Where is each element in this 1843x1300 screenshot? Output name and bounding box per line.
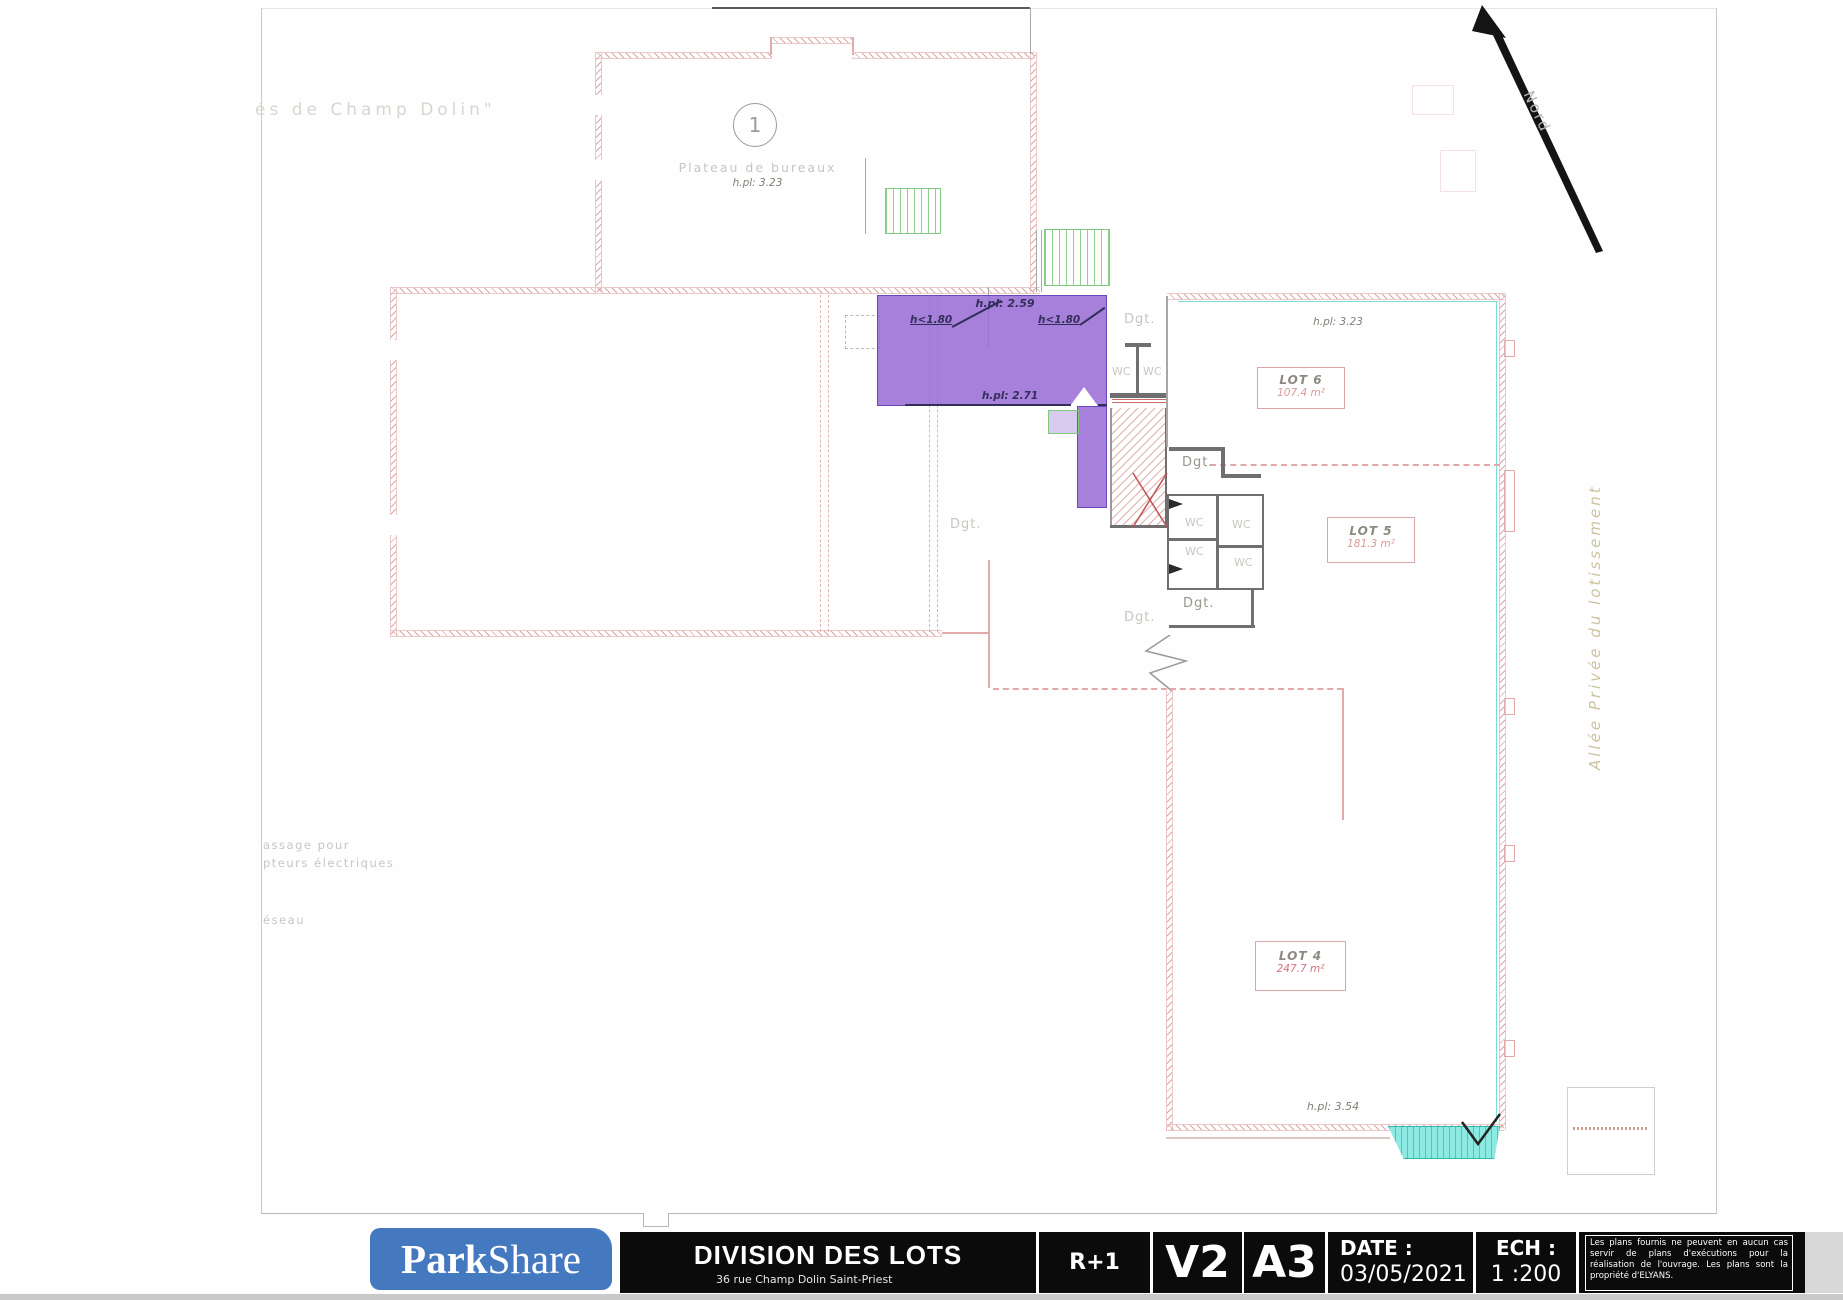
partition-trace	[828, 295, 829, 632]
lot5-name: LOT 5	[1328, 524, 1414, 538]
window-gap	[389, 340, 398, 360]
divider	[1576, 1232, 1579, 1293]
window-gap	[594, 95, 602, 115]
degagement-label: Dgt.	[1124, 610, 1156, 625]
corridor-wall	[1169, 447, 1225, 451]
corridor-wall	[1221, 474, 1261, 478]
top-building-top-wall	[595, 52, 772, 59]
main-building-right-wall	[988, 560, 990, 688]
mezzanine-height-bottom: h.pl: 2.71	[965, 390, 1055, 402]
parkshare-logo: ParkShare	[370, 1228, 612, 1290]
mezzanine-edge-line	[905, 404, 1071, 406]
wc-wall	[1216, 545, 1264, 548]
lot4-area: 247.7 m²	[1256, 963, 1345, 975]
stamp-box	[1567, 1087, 1655, 1175]
unit1-number: 1	[749, 113, 762, 137]
date-section: DATE : 03/05/2021	[1328, 1232, 1473, 1293]
format-section: A3	[1244, 1232, 1325, 1293]
stair-top	[885, 188, 941, 234]
drawing-address: 36 rue Champ Dolin Saint-Priest	[716, 1273, 892, 1286]
stair-main	[1044, 229, 1110, 286]
pilaster	[1504, 845, 1515, 862]
shaft-wall	[1041, 230, 1042, 292]
lot4-top-boundary	[1170, 688, 1343, 690]
lot6-label-box: LOT 6 107.4 m²	[1257, 367, 1345, 409]
mezzanine-height-left: h<1.80	[910, 314, 952, 326]
top-building-top-wall2	[852, 52, 1035, 59]
corridor-wall	[1251, 590, 1254, 628]
pilaster	[1504, 470, 1515, 532]
level-value: R+1	[1069, 1250, 1120, 1275]
partition-trace	[820, 295, 821, 632]
lot5-label-box: LOT 5 181.3 m²	[1327, 517, 1415, 563]
top-building-bump-left	[770, 37, 772, 55]
wc-label: WC	[1185, 545, 1204, 558]
lot4-boundary-ext	[993, 688, 1167, 690]
mezzanine-height-top: h.pl: 2.59	[960, 297, 1050, 310]
bar-right-fill	[1805, 1232, 1843, 1293]
degagement-label: Dgt.	[950, 517, 982, 532]
disclaimer-section: Les plans fournis ne peuvent en aucun ca…	[1583, 1232, 1798, 1293]
degagement-label: Dgt.	[1182, 455, 1214, 470]
date-value: 03/05/2021	[1340, 1262, 1467, 1287]
red-line	[1112, 402, 1167, 403]
logo-part2: Share	[488, 1235, 581, 1283]
logo-part1: Park	[401, 1235, 488, 1283]
shaft-line	[1030, 8, 1031, 54]
lot4-name: LOT 4	[1256, 949, 1345, 963]
lot4-height: h.pl: 3.54	[1278, 1100, 1388, 1113]
frame-note: és de Champ Dolin"	[255, 100, 496, 120]
stamp-text-line	[1573, 1127, 1647, 1130]
stair-landing	[1048, 410, 1079, 434]
mezzanine-height-right: h<1.80	[1038, 314, 1080, 326]
sheet-border-left	[261, 8, 262, 1214]
format-value: A3	[1252, 1237, 1317, 1288]
lot6-height: h.pl: 3.23	[1288, 316, 1388, 328]
wc-label: WC	[1185, 516, 1204, 529]
pilaster	[1504, 340, 1515, 357]
allee-privee-label: Allée Privée du lotissement	[1586, 390, 1612, 770]
window-gap	[389, 515, 398, 535]
lot6-top-wall	[1167, 293, 1505, 300]
unit1-height: h.pl: 3.23	[650, 177, 865, 189]
faint-plan-fragment	[1412, 85, 1454, 115]
degagement-label: Dgt.	[1183, 596, 1215, 611]
cyan-inner-line	[1178, 301, 1498, 302]
wc-wall	[1136, 343, 1139, 393]
wc-label: WC	[1143, 365, 1162, 378]
scale-section: ECH : 1 :200	[1476, 1232, 1576, 1293]
wc-wall	[1110, 393, 1168, 398]
lot-separation	[1210, 464, 1500, 466]
top-building-top-bump	[770, 37, 854, 44]
interior-line	[865, 158, 866, 234]
scale-label: ECH :	[1476, 1236, 1576, 1260]
version-value: V2	[1165, 1237, 1230, 1288]
break-symbol	[1142, 635, 1192, 693]
red-line	[1112, 399, 1167, 400]
lot4-label-box: LOT 4 247.7 m²	[1255, 941, 1346, 991]
wc-label: WC	[1112, 365, 1131, 378]
unit1-marker: 1	[733, 103, 777, 147]
corridor-wall	[1169, 625, 1255, 628]
right-building-left-wall	[1166, 296, 1168, 447]
unit1-name: Plateau de bureaux	[650, 160, 865, 175]
main-building-top-wall	[390, 287, 1040, 294]
level-check-mark	[1458, 1110, 1503, 1148]
margin-note-2: pteurs électriques	[263, 856, 394, 870]
main-building-bottom-ext	[942, 632, 990, 634]
lot6-name: LOT 6	[1258, 373, 1344, 387]
stair-cross	[1130, 470, 1170, 530]
date-label: DATE :	[1340, 1236, 1413, 1260]
mezzanine-edge-line	[1098, 404, 1107, 406]
title-section: DIVISION DES LOTS 36 rue Champ Dolin Sai…	[620, 1232, 1036, 1293]
window-gap	[594, 160, 602, 180]
sheet-border-top-dark	[712, 7, 1030, 9]
door-swing	[1169, 499, 1183, 509]
door-swing	[1169, 564, 1183, 574]
version-section: V2	[1153, 1232, 1242, 1293]
sheet-border-right	[1716, 8, 1717, 1214]
lot4-outer-line	[1166, 1137, 1390, 1139]
pilaster	[1504, 698, 1515, 715]
wc-label: WC	[1234, 556, 1253, 569]
shaft-wall	[1036, 230, 1037, 292]
margin-note-3: éseau	[263, 913, 305, 927]
mezzanine-notch	[1070, 387, 1098, 406]
lot5-area: 181.3 m²	[1328, 538, 1414, 550]
dashed-duct	[845, 315, 880, 349]
wc-wall	[1167, 538, 1219, 541]
level-section: R+1	[1039, 1232, 1150, 1293]
title-bar: DIVISION DES LOTS 36 rue Champ Dolin Sai…	[620, 1232, 1805, 1293]
degagement-label: Dgt.	[1124, 312, 1156, 327]
cyan-inner-line	[1496, 302, 1497, 1122]
wc-wall	[1216, 494, 1219, 590]
margin-note-1: assage pour	[263, 838, 350, 852]
floorplan-sheet: és de Champ Dolin" Nord Allée Privée du …	[0, 0, 1843, 1300]
highlight-mezzanine-strip	[1077, 406, 1107, 508]
lot6-area: 107.4 m²	[1258, 387, 1344, 399]
main-building-bottom-wall	[390, 630, 942, 637]
disclaimer-text: Les plans fournis ne peuvent en aucun ca…	[1585, 1235, 1793, 1291]
lot4-partition	[1342, 688, 1344, 820]
wc-label: WC	[1232, 518, 1251, 531]
drawing-title: DIVISION DES LOTS	[620, 1240, 1036, 1271]
sheet-border-bottom	[261, 1213, 1717, 1214]
pilaster	[1504, 1040, 1515, 1057]
scale-value: 1 :200	[1476, 1262, 1576, 1287]
bottom-strip	[0, 1294, 1843, 1300]
lot4-left-wall	[1166, 688, 1173, 1130]
sheet-bottom-tick	[643, 1213, 669, 1227]
